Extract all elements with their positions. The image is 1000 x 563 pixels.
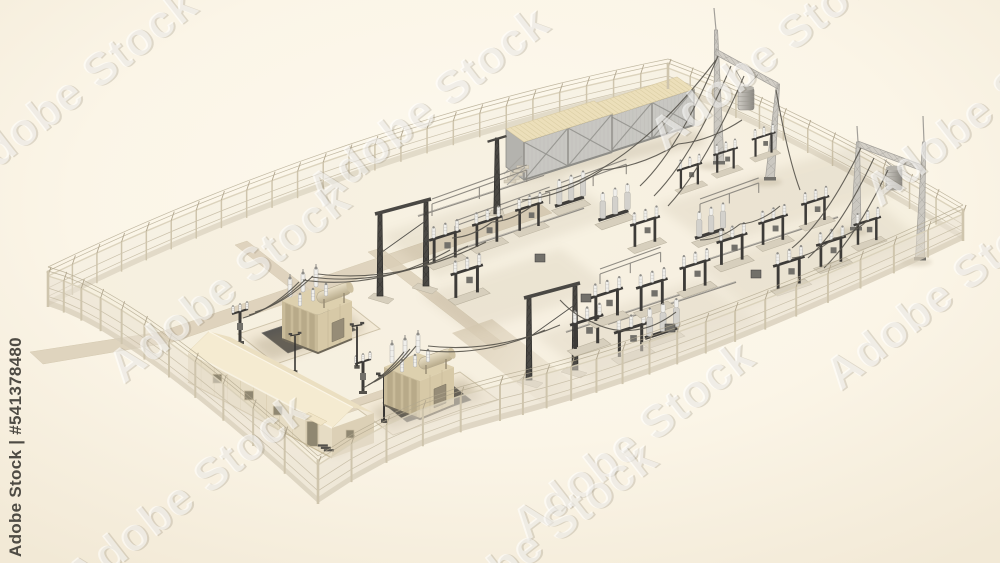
ground-cabinet (751, 270, 761, 278)
ground-cabinet (535, 254, 545, 262)
ground-cabinet (581, 294, 591, 302)
stock-photo-canvas: Isometric 3D render of a high voltage el… (0, 0, 1000, 563)
asset-id-watermark: Adobe Stock | #541378480 (6, 337, 25, 557)
door-steps (318, 444, 328, 446)
substation-3d-render: Adobe StockAdobe StockAdobe StockAdobe S… (0, 0, 1000, 563)
